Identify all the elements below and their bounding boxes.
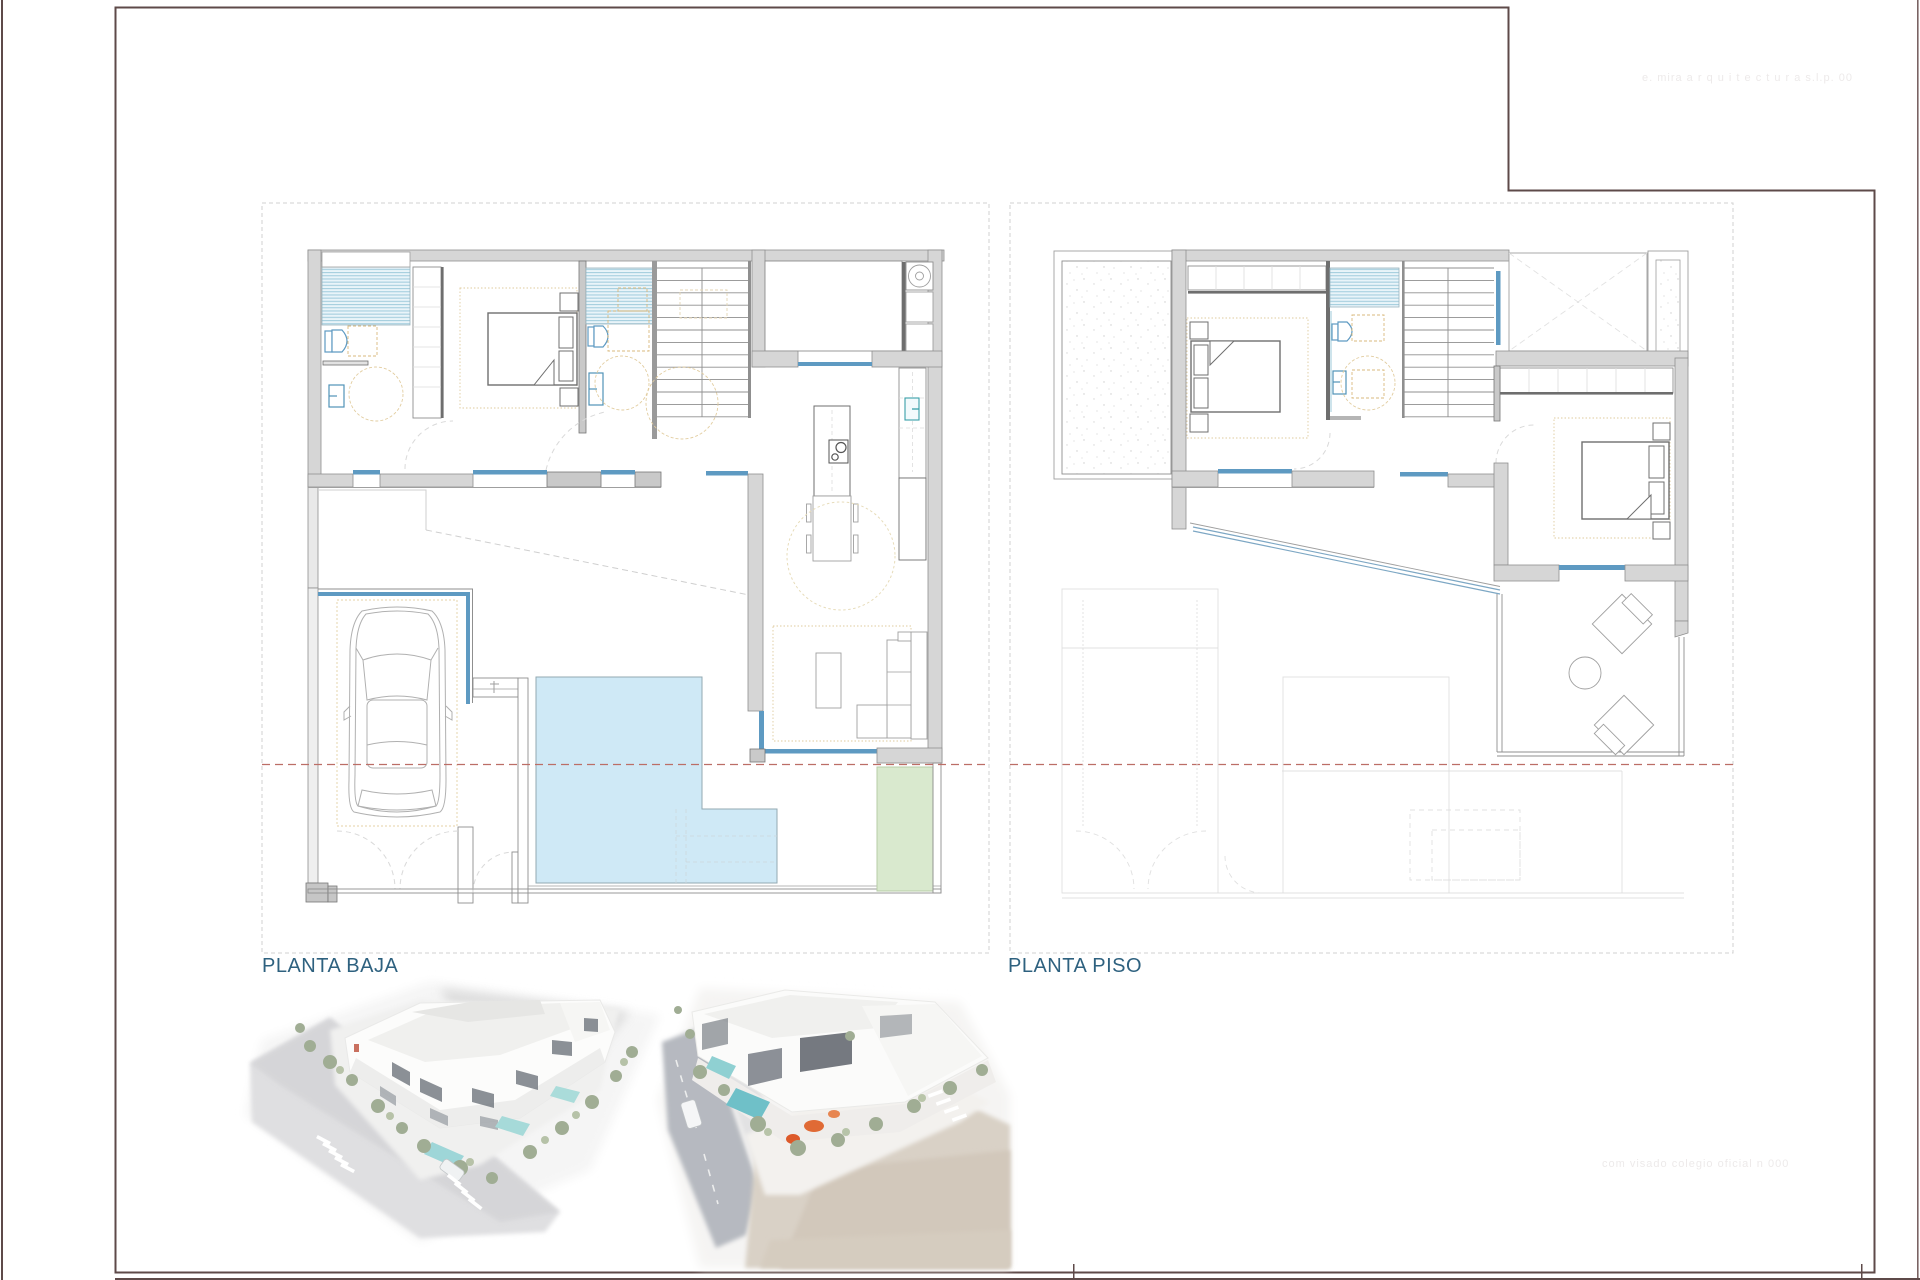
svg-text:PLANTA PISO: PLANTA PISO (1008, 955, 1142, 977)
svg-text:PLANTA BAJA: PLANTA BAJA (262, 955, 398, 977)
svg-text:com visado colegio oficial: com visado colegio oficial n 000 (1602, 1158, 1789, 1170)
svg-text:e. mira a r q u i t e c t u: e. mira a r q u i t e c t u r a s.l.p. 0… (1642, 72, 1853, 84)
